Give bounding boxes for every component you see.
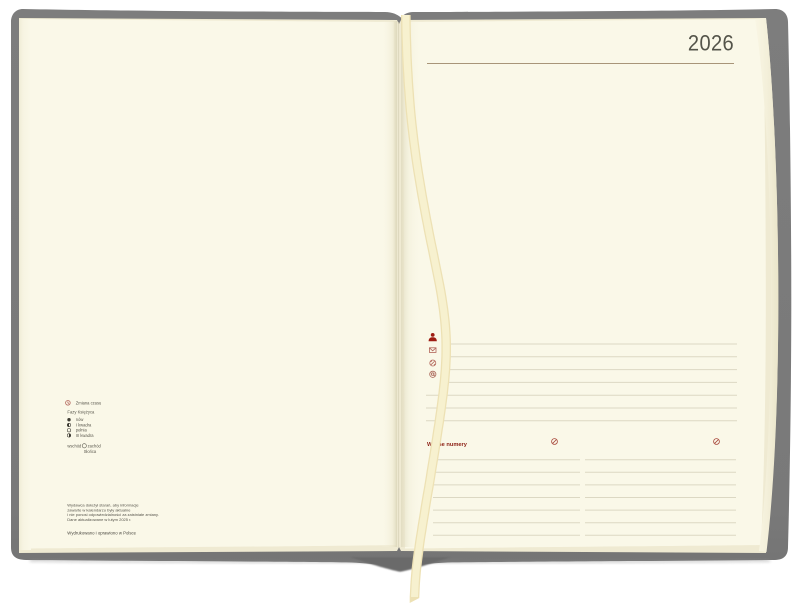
svg-text:Słońca: Słońca xyxy=(84,449,97,454)
svg-text:Wydrukowano i oprawiono w Pols: Wydrukowano i oprawiono w Polsce xyxy=(67,531,136,536)
svg-text:wschód: wschód xyxy=(67,444,82,449)
svg-text:Dane aktualizowane w lutym 202: Dane aktualizowane w lutym 2025 r. xyxy=(67,517,131,522)
svg-text:Zmiana czasu: Zmiana czasu xyxy=(76,401,101,406)
svg-text:III kwadra: III kwadra xyxy=(76,433,94,438)
svg-text:nów: nów xyxy=(76,417,84,422)
svg-text:zachód: zachód xyxy=(88,444,102,449)
svg-text:2026: 2026 xyxy=(688,31,734,55)
svg-text:Fazy Księżyca: Fazy Księżyca xyxy=(67,409,95,414)
